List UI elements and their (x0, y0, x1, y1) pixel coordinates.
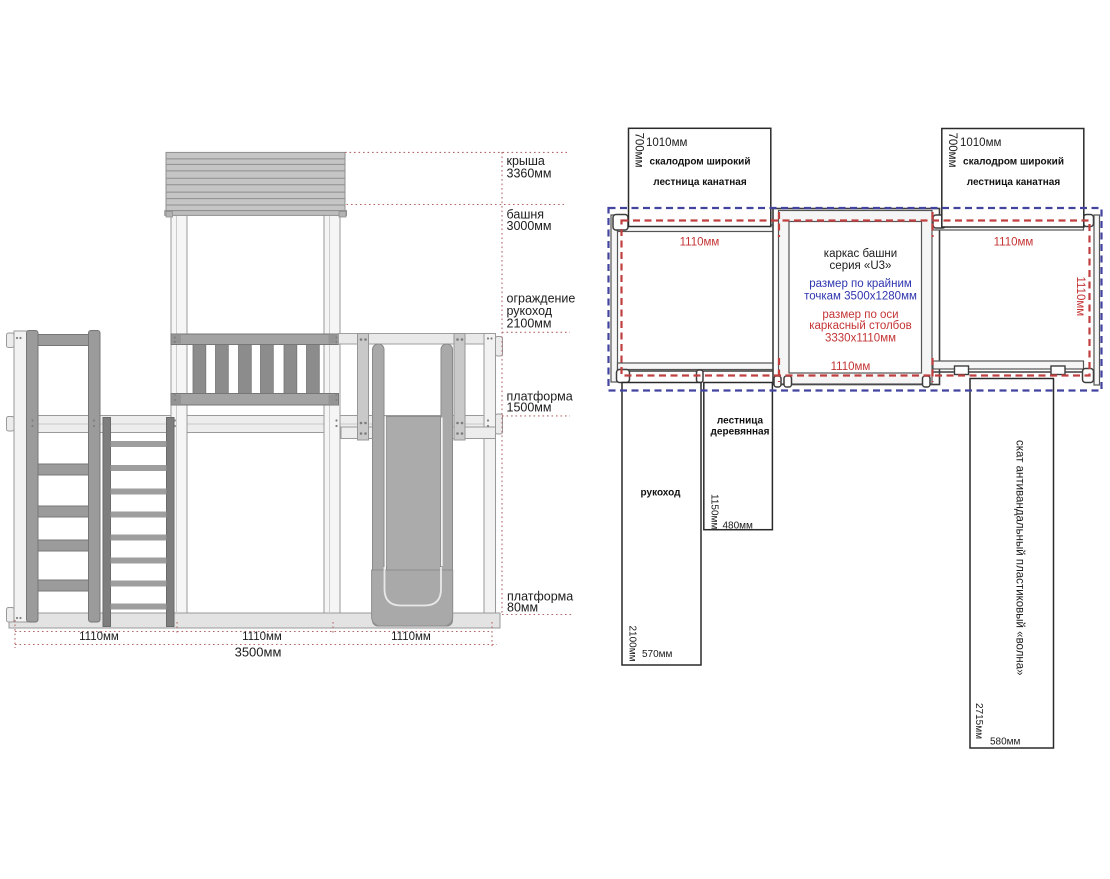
svg-text:скалодром широкий: скалодром широкий (963, 157, 1064, 168)
svg-text:рукоход: рукоход (641, 488, 682, 499)
svg-text:1110мм: 1110мм (242, 631, 282, 643)
svg-text:480мм: 480мм (723, 521, 754, 532)
svg-text:лестница канатная: лестница канатная (967, 177, 1061, 188)
svg-text:лестница: лестница (717, 416, 764, 427)
svg-text:каркас башни: каркас башни (824, 248, 897, 260)
svg-text:2100мм: 2100мм (507, 317, 552, 331)
svg-text:1010мм: 1010мм (646, 137, 687, 149)
svg-text:3000мм: 3000мм (507, 219, 552, 233)
svg-text:700мм: 700мм (946, 133, 958, 168)
svg-text:80мм: 80мм (507, 601, 538, 615)
svg-text:700мм: 700мм (633, 133, 645, 168)
svg-text:1110мм: 1110мм (680, 237, 720, 249)
svg-text:серия «U3»: серия «U3» (830, 260, 892, 272)
svg-text:570мм: 570мм (642, 649, 673, 660)
svg-text:3330х1110мм: 3330х1110мм (825, 333, 896, 345)
svg-text:1110мм: 1110мм (79, 631, 119, 643)
svg-text:3500мм: 3500мм (235, 645, 282, 660)
svg-text:точкам 3500х1280мм: точкам 3500х1280мм (804, 291, 917, 303)
svg-text:лестница канатная: лестница канатная (653, 177, 747, 188)
svg-text:1500мм: 1500мм (507, 401, 552, 415)
svg-text:размер по крайним: размер по крайним (809, 278, 912, 290)
svg-text:2100мм: 2100мм (627, 626, 638, 662)
svg-text:1010мм: 1010мм (960, 137, 1001, 149)
svg-text:2715мм: 2715мм (973, 703, 984, 739)
svg-text:скат антивандальный пластиковы: скат антивандальный пластиковый «волна» (1014, 440, 1026, 676)
svg-text:3360мм: 3360мм (507, 167, 552, 181)
svg-text:1150мм: 1150мм (709, 494, 720, 529)
svg-text:1110мм: 1110мм (1074, 277, 1086, 317)
svg-text:деревянная: деревянная (711, 427, 770, 438)
svg-text:каркасный столбов: каркасный столбов (809, 320, 912, 332)
svg-text:1110мм: 1110мм (994, 237, 1034, 249)
svg-text:скалодром широкий: скалодром широкий (650, 157, 751, 168)
svg-text:1110мм: 1110мм (391, 631, 431, 643)
svg-text:1110мм: 1110мм (831, 361, 871, 373)
svg-text:580мм: 580мм (990, 737, 1021, 748)
